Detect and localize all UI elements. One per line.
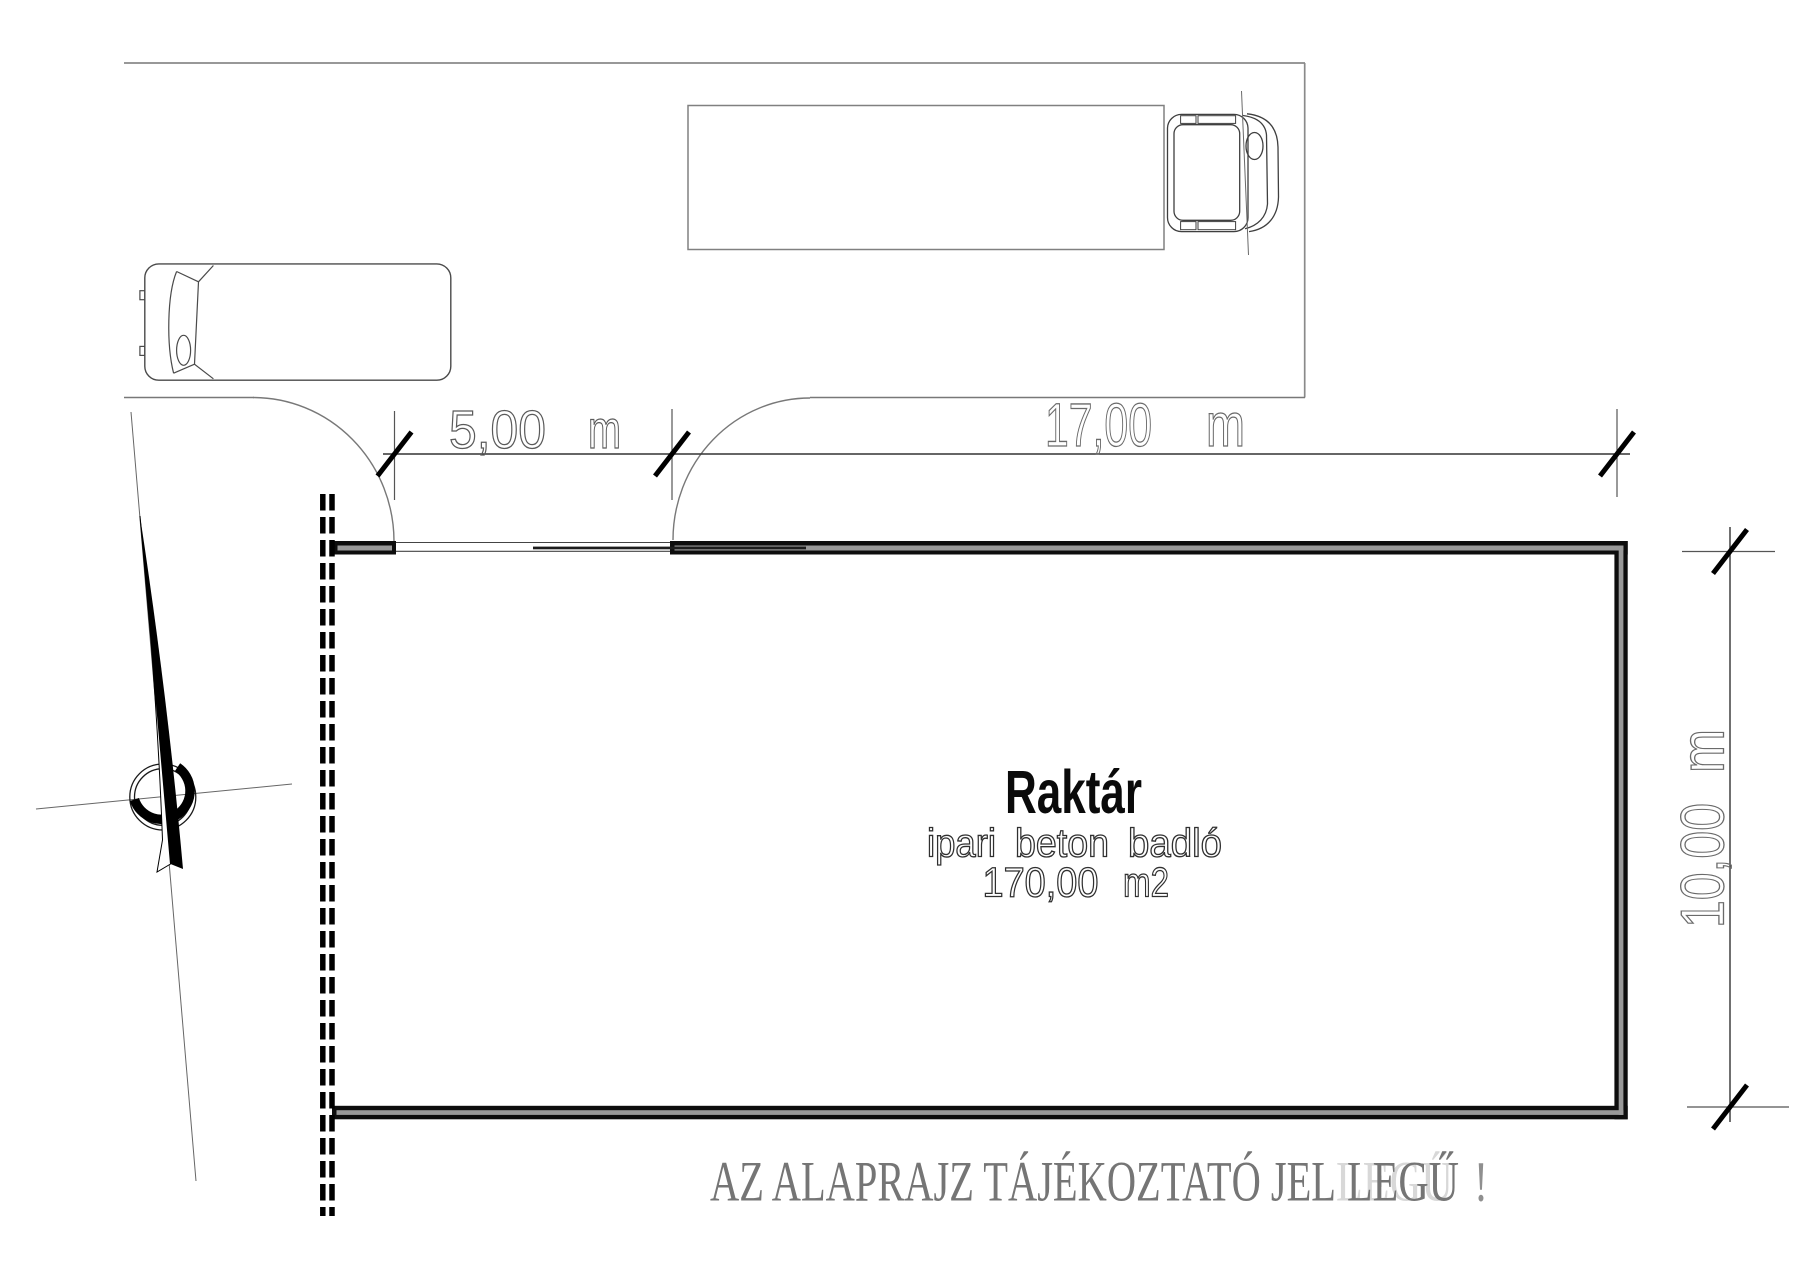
- svg-text:5,00: 5,00: [449, 400, 546, 460]
- svg-text:m: m: [1669, 729, 1737, 773]
- svg-text:!: !: [1474, 1151, 1488, 1214]
- svg-text:m2: m2: [1123, 859, 1169, 906]
- svg-text:170,00: 170,00: [983, 859, 1099, 906]
- svg-text:10,00: 10,00: [1669, 803, 1737, 928]
- svg-text:LEGŰ: LEGŰ: [1347, 1151, 1459, 1214]
- svg-text:m: m: [1206, 391, 1245, 459]
- svg-text:AZ ALAPRAJZ TÁJÉKOZTATÓ JEL: AZ ALAPRAJZ TÁJÉKOZTATÓ JEL: [710, 1151, 1336, 1214]
- svg-text:17,00: 17,00: [1045, 391, 1152, 459]
- svg-text:m: m: [588, 400, 621, 460]
- svg-text:Raktár: Raktár: [1005, 758, 1142, 826]
